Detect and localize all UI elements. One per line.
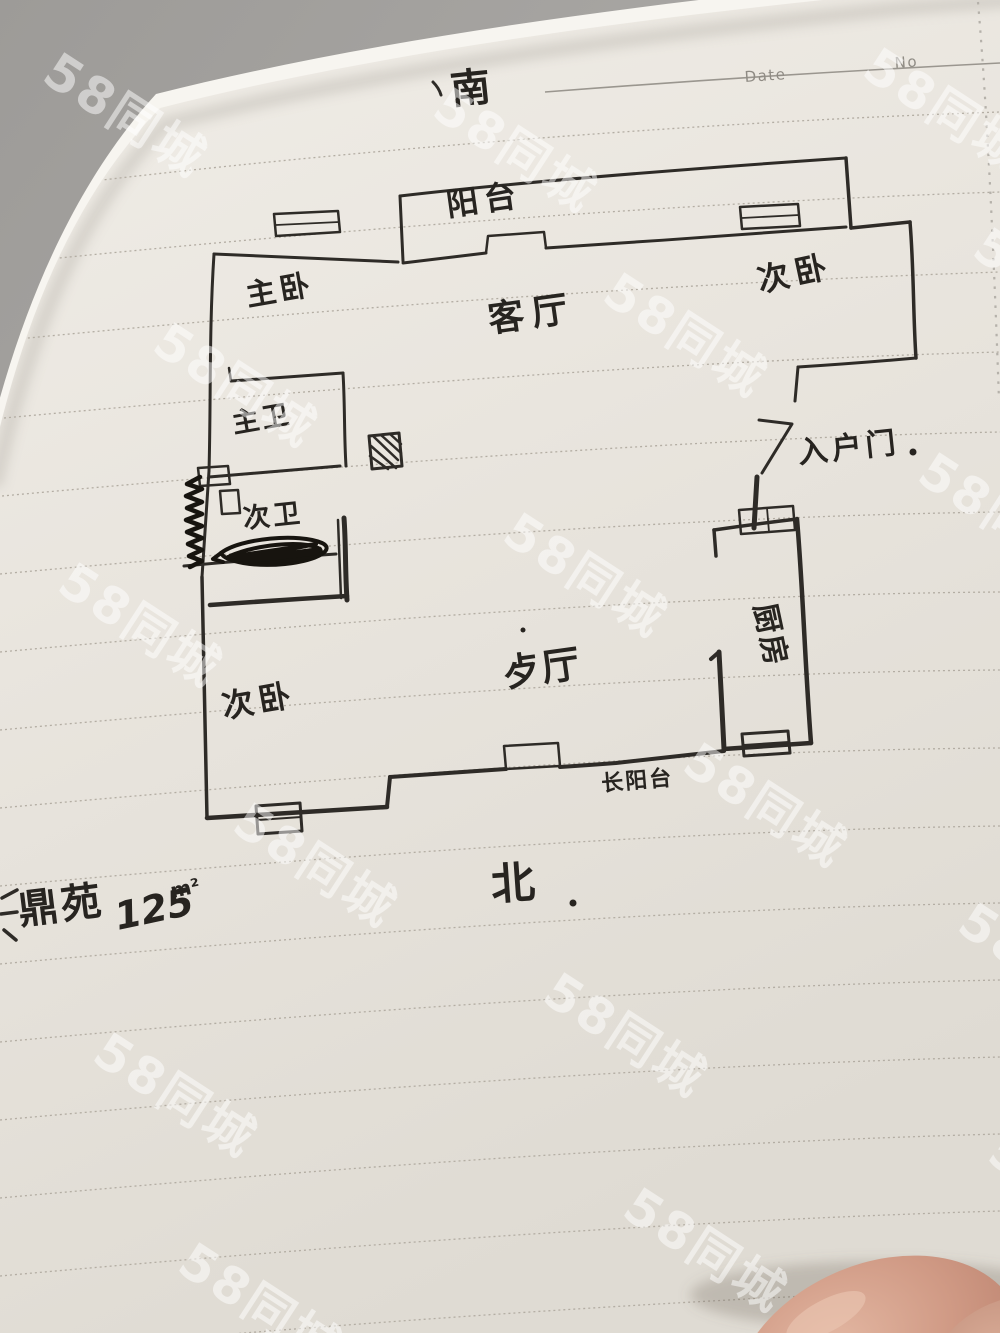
notebook-photo: Date No <box>0 0 1000 1333</box>
date-label: Date <box>744 65 787 86</box>
room-label-bathroom-2: 次卫 <box>241 498 304 535</box>
compass-north-label: 北 <box>489 857 536 911</box>
photo-canvas: Date No <box>0 0 1000 1333</box>
